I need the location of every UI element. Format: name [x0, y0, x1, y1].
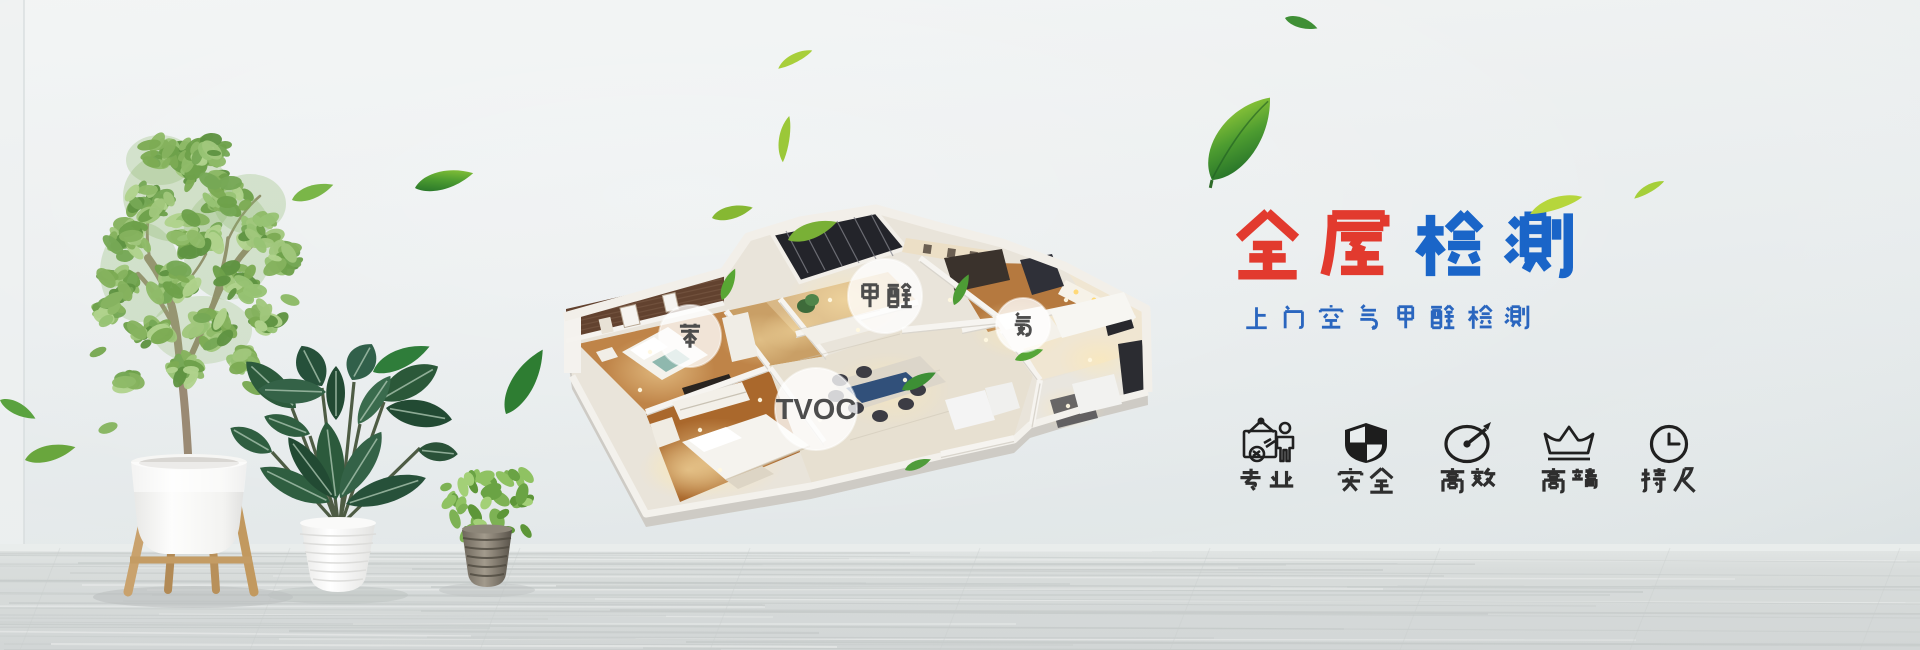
svg-text:TVOC: TVOC [776, 394, 857, 426]
